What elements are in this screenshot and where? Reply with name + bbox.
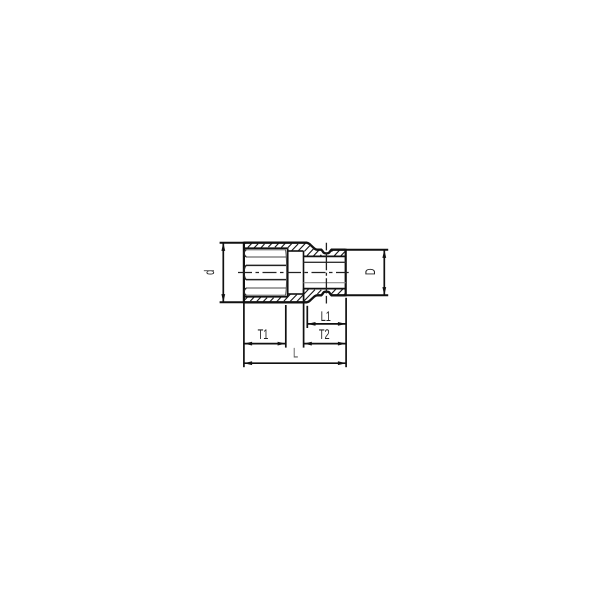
svg-text:L1: L1 <box>321 308 331 324</box>
svg-text:d: d <box>201 270 217 275</box>
svg-text:T2: T2 <box>319 326 330 342</box>
svg-text:D: D <box>362 268 378 275</box>
svg-text:L: L <box>293 345 298 361</box>
svg-text:T1: T1 <box>258 326 269 342</box>
